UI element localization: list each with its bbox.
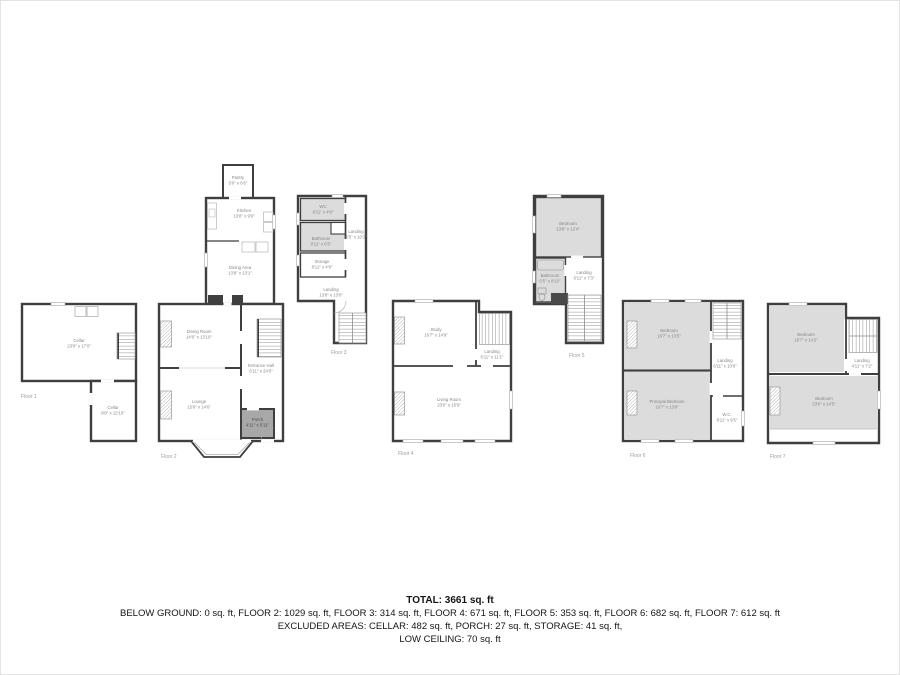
floor-label-2: Floor 2 xyxy=(161,454,177,460)
door-opening xyxy=(224,303,232,306)
door-opening xyxy=(344,203,347,214)
room-name: Entrance Hall xyxy=(248,363,274,368)
door-opening xyxy=(344,239,347,250)
per-floor-area-text: BELOW GROUND: 0 sq. ft, FLOOR 2: 1029 sq… xyxy=(1,608,899,621)
window xyxy=(51,303,65,306)
room-dims: 16'7" x 14'2" xyxy=(794,338,818,343)
room-name: Bedroom xyxy=(660,328,678,333)
door-opening xyxy=(710,331,713,343)
room-dims: 13'8" x 13'1" xyxy=(228,271,252,276)
chimney-hatch xyxy=(627,321,637,348)
window xyxy=(547,195,561,198)
window xyxy=(297,255,300,266)
door-opening xyxy=(710,383,713,395)
stairs xyxy=(568,295,601,341)
chimney-hatch xyxy=(627,391,637,415)
stairs xyxy=(257,319,281,357)
wall-mass xyxy=(208,295,223,305)
low-ceiling-text: LOW CEILING: 70 sq. ft xyxy=(1,634,899,647)
window xyxy=(685,300,701,303)
floorplan-floor-6: Bedroom 16'7" x 13'5" Landing 6'11" x 10… xyxy=(623,300,744,459)
excluded-areas-text: EXCLUDED AREAS: CELLAR: 482 sq. ft, PORC… xyxy=(1,621,899,634)
room-name: Landing xyxy=(484,349,500,354)
stairs xyxy=(480,314,510,345)
window xyxy=(533,271,536,283)
door-opening xyxy=(453,365,467,368)
room-name: Bedroom xyxy=(815,396,833,401)
room-dims: 6'11" x 9'5" xyxy=(717,418,738,423)
room-dims: 6'11" x 10'0" xyxy=(713,364,737,369)
bay-window xyxy=(191,440,253,457)
room-name: Study xyxy=(431,327,443,332)
room-dims: 4'11" x 5'11" xyxy=(246,423,269,428)
room-name: Storage xyxy=(314,259,330,264)
floorplan-drawing: Cellar 23'0" x 17'0" Cellar 8'8" x 12'10… xyxy=(1,1,900,581)
door-opening xyxy=(571,256,583,259)
room-dims: 23'0" x 17'0" xyxy=(67,344,91,349)
room-label-bedroom: Bedroom 16'7" x 13'5" xyxy=(657,328,681,339)
floor-label-1: Floor 1 xyxy=(21,394,37,400)
room-name: Landing xyxy=(717,358,733,363)
floorplan-floor-5: Bedroom 13'8" x 12'4" Bathroom 6'5" x 8'… xyxy=(533,195,603,359)
stairs xyxy=(713,303,741,339)
door-opening xyxy=(481,365,493,368)
room-dims: 6'11" x 24'0" xyxy=(249,369,273,374)
room-dims: 8'8" x 12'10" xyxy=(101,411,125,416)
window xyxy=(475,440,495,443)
room-dims: 6'5" x 8'10" xyxy=(539,279,561,284)
room-name: Living Room xyxy=(437,397,461,402)
window xyxy=(813,442,835,445)
cupboard xyxy=(331,223,346,235)
room-dims: 13'8" x 9'9" xyxy=(233,214,255,219)
room-name: Bathroom xyxy=(541,273,560,278)
room-name: Principal Bedroom xyxy=(649,399,685,404)
floorplan-floor-3: WC 8'11" x 4'9" Bathroom 8'11" x 6'5" St… xyxy=(297,195,367,356)
room-name: Porch xyxy=(252,417,264,422)
room-name: Pantry xyxy=(232,175,245,180)
stairs xyxy=(849,320,877,353)
room-label-bedroom-rear: Bedroom 23'0" x 14'5" xyxy=(812,396,836,407)
room-name: Dining Area xyxy=(229,265,252,270)
window xyxy=(742,411,745,426)
room-name: WC xyxy=(319,204,326,209)
room-label-bathroom: Bathroom 8'11" x 6'5" xyxy=(311,236,332,247)
window xyxy=(297,213,300,225)
door-opening xyxy=(101,380,114,383)
room-name: Landing xyxy=(348,229,364,234)
room-dims: 8'11" x 4'9" xyxy=(313,210,334,215)
door-opening xyxy=(344,259,347,270)
floor-label-5: Floor 5 xyxy=(569,353,585,359)
room-label-bedroom: Bedroom 13'8" x 12'4" xyxy=(556,221,580,232)
room-dims: 8'11" x 4'9" xyxy=(312,265,333,270)
stairs xyxy=(117,333,135,359)
room-label-dining-area: Dining Area 13'8" x 13'1" xyxy=(228,265,252,276)
window xyxy=(641,440,659,443)
room-name: Landing xyxy=(323,287,339,292)
window xyxy=(651,300,669,303)
room-dims: 16'7" x 13'5" xyxy=(657,334,681,339)
room-dims: 4'5" x 10'3" xyxy=(345,235,367,240)
door-opening xyxy=(475,349,478,360)
floor-label-4: Floor 4 xyxy=(398,451,414,457)
room-name: Lounge xyxy=(192,399,207,404)
chimney-hatch xyxy=(395,317,405,344)
room-name: Cellar xyxy=(73,338,85,343)
front-door-opening xyxy=(261,440,274,443)
window xyxy=(789,303,807,306)
total-area-text: TOTAL: 3661 sq. ft xyxy=(1,595,899,608)
room-dims: 5'0" x 6'6" xyxy=(229,181,248,186)
room-name: Dining Room xyxy=(187,329,212,334)
room-dims: 13'8" x 13'0" xyxy=(319,293,343,298)
door-opening xyxy=(229,197,241,200)
floor-label-3: Floor 3 xyxy=(331,350,347,356)
window xyxy=(878,391,881,409)
door-opening xyxy=(240,376,243,389)
room-dims: 16'7" x 14'9" xyxy=(424,333,448,338)
window xyxy=(205,253,208,267)
room-name: W.C. xyxy=(722,412,731,417)
floorplan-floor-1: Cellar 23'0" x 17'0" Cellar 8'8" x 12'10… xyxy=(21,303,136,441)
door-opening xyxy=(849,373,861,376)
room-dims: 13'8" x 12'4" xyxy=(556,227,580,232)
room-dims: 16'7" x 13'9" xyxy=(655,405,679,410)
room-name: Cellar xyxy=(107,405,119,410)
room-dims: 6'11" x 11'1" xyxy=(481,355,504,360)
room-label-living-room: Living Room 23'0" x 15'9" xyxy=(437,397,461,408)
wall-mass xyxy=(551,293,568,304)
window xyxy=(273,215,276,229)
room-name: Landing xyxy=(576,270,592,275)
room-dims: 8'11" x 6'5" xyxy=(311,242,332,247)
floor-label-7: Floor 7 xyxy=(770,454,786,460)
chimney-hatch xyxy=(161,391,172,419)
window xyxy=(332,195,343,198)
room-name: Kitchen xyxy=(237,208,252,213)
room-dims: 6'11" x 7'3" xyxy=(574,276,595,281)
room-name: Bedroom xyxy=(797,332,815,337)
door-opening xyxy=(564,265,567,276)
door-opening xyxy=(713,395,723,398)
window xyxy=(675,440,693,443)
room-label-entrance-hall: Entrance Hall 6'11" x 24'0" xyxy=(248,363,274,374)
area-summary: TOTAL: 3661 sq. ft BELOW GROUND: 0 sq. f… xyxy=(1,595,899,647)
window xyxy=(415,300,433,303)
window xyxy=(441,440,463,443)
door-opening xyxy=(90,393,93,405)
floorplan-page: Cellar 23'0" x 17'0" Cellar 8'8" x 12'10… xyxy=(0,0,900,675)
window xyxy=(403,440,423,443)
chimney-hatch xyxy=(161,321,172,347)
floor-label-6: Floor 6 xyxy=(630,453,646,459)
floorplan-floor-7: Bedroom 16'7" x 14'2" Landing 4'11" x 7'… xyxy=(768,303,880,460)
room-name: Landing xyxy=(854,358,870,363)
room-dims: 23'0" x 15'9" xyxy=(437,403,461,408)
door-opening xyxy=(247,408,259,411)
stairs xyxy=(339,313,366,343)
floorplan-floor-2: Pantry 5'0" x 6'6" Kitchen 13'8" x 9'9" … xyxy=(159,165,283,460)
room-label-dining-room: Dining Room 14'6" x 13'10" xyxy=(186,329,212,340)
room-dims: 14'6" x 13'10" xyxy=(186,335,212,340)
floorplan-floor-4: Study 16'7" x 14'9" Landing 6'11" x 11'1… xyxy=(393,300,512,457)
window xyxy=(533,216,536,233)
window xyxy=(510,391,513,409)
room-name: Bedroom xyxy=(559,221,577,226)
wall-mass xyxy=(232,295,243,305)
door-opening xyxy=(240,331,243,344)
room-dims: 23'0" x 14'5" xyxy=(812,402,836,407)
chimney-hatch xyxy=(770,387,780,415)
room-name: Bathroom xyxy=(312,236,331,241)
room-label-bathroom: Bathroom 6'5" x 8'10" xyxy=(539,273,561,284)
room-dims: 15'6" x 14'6" xyxy=(187,405,211,410)
door-opening xyxy=(845,359,848,371)
room-label-bedroom-front: Bedroom 16'7" x 14'2" xyxy=(794,332,818,343)
chimney-hatch xyxy=(395,392,405,415)
room-dims: 4'11" x 7'2" xyxy=(852,364,873,369)
